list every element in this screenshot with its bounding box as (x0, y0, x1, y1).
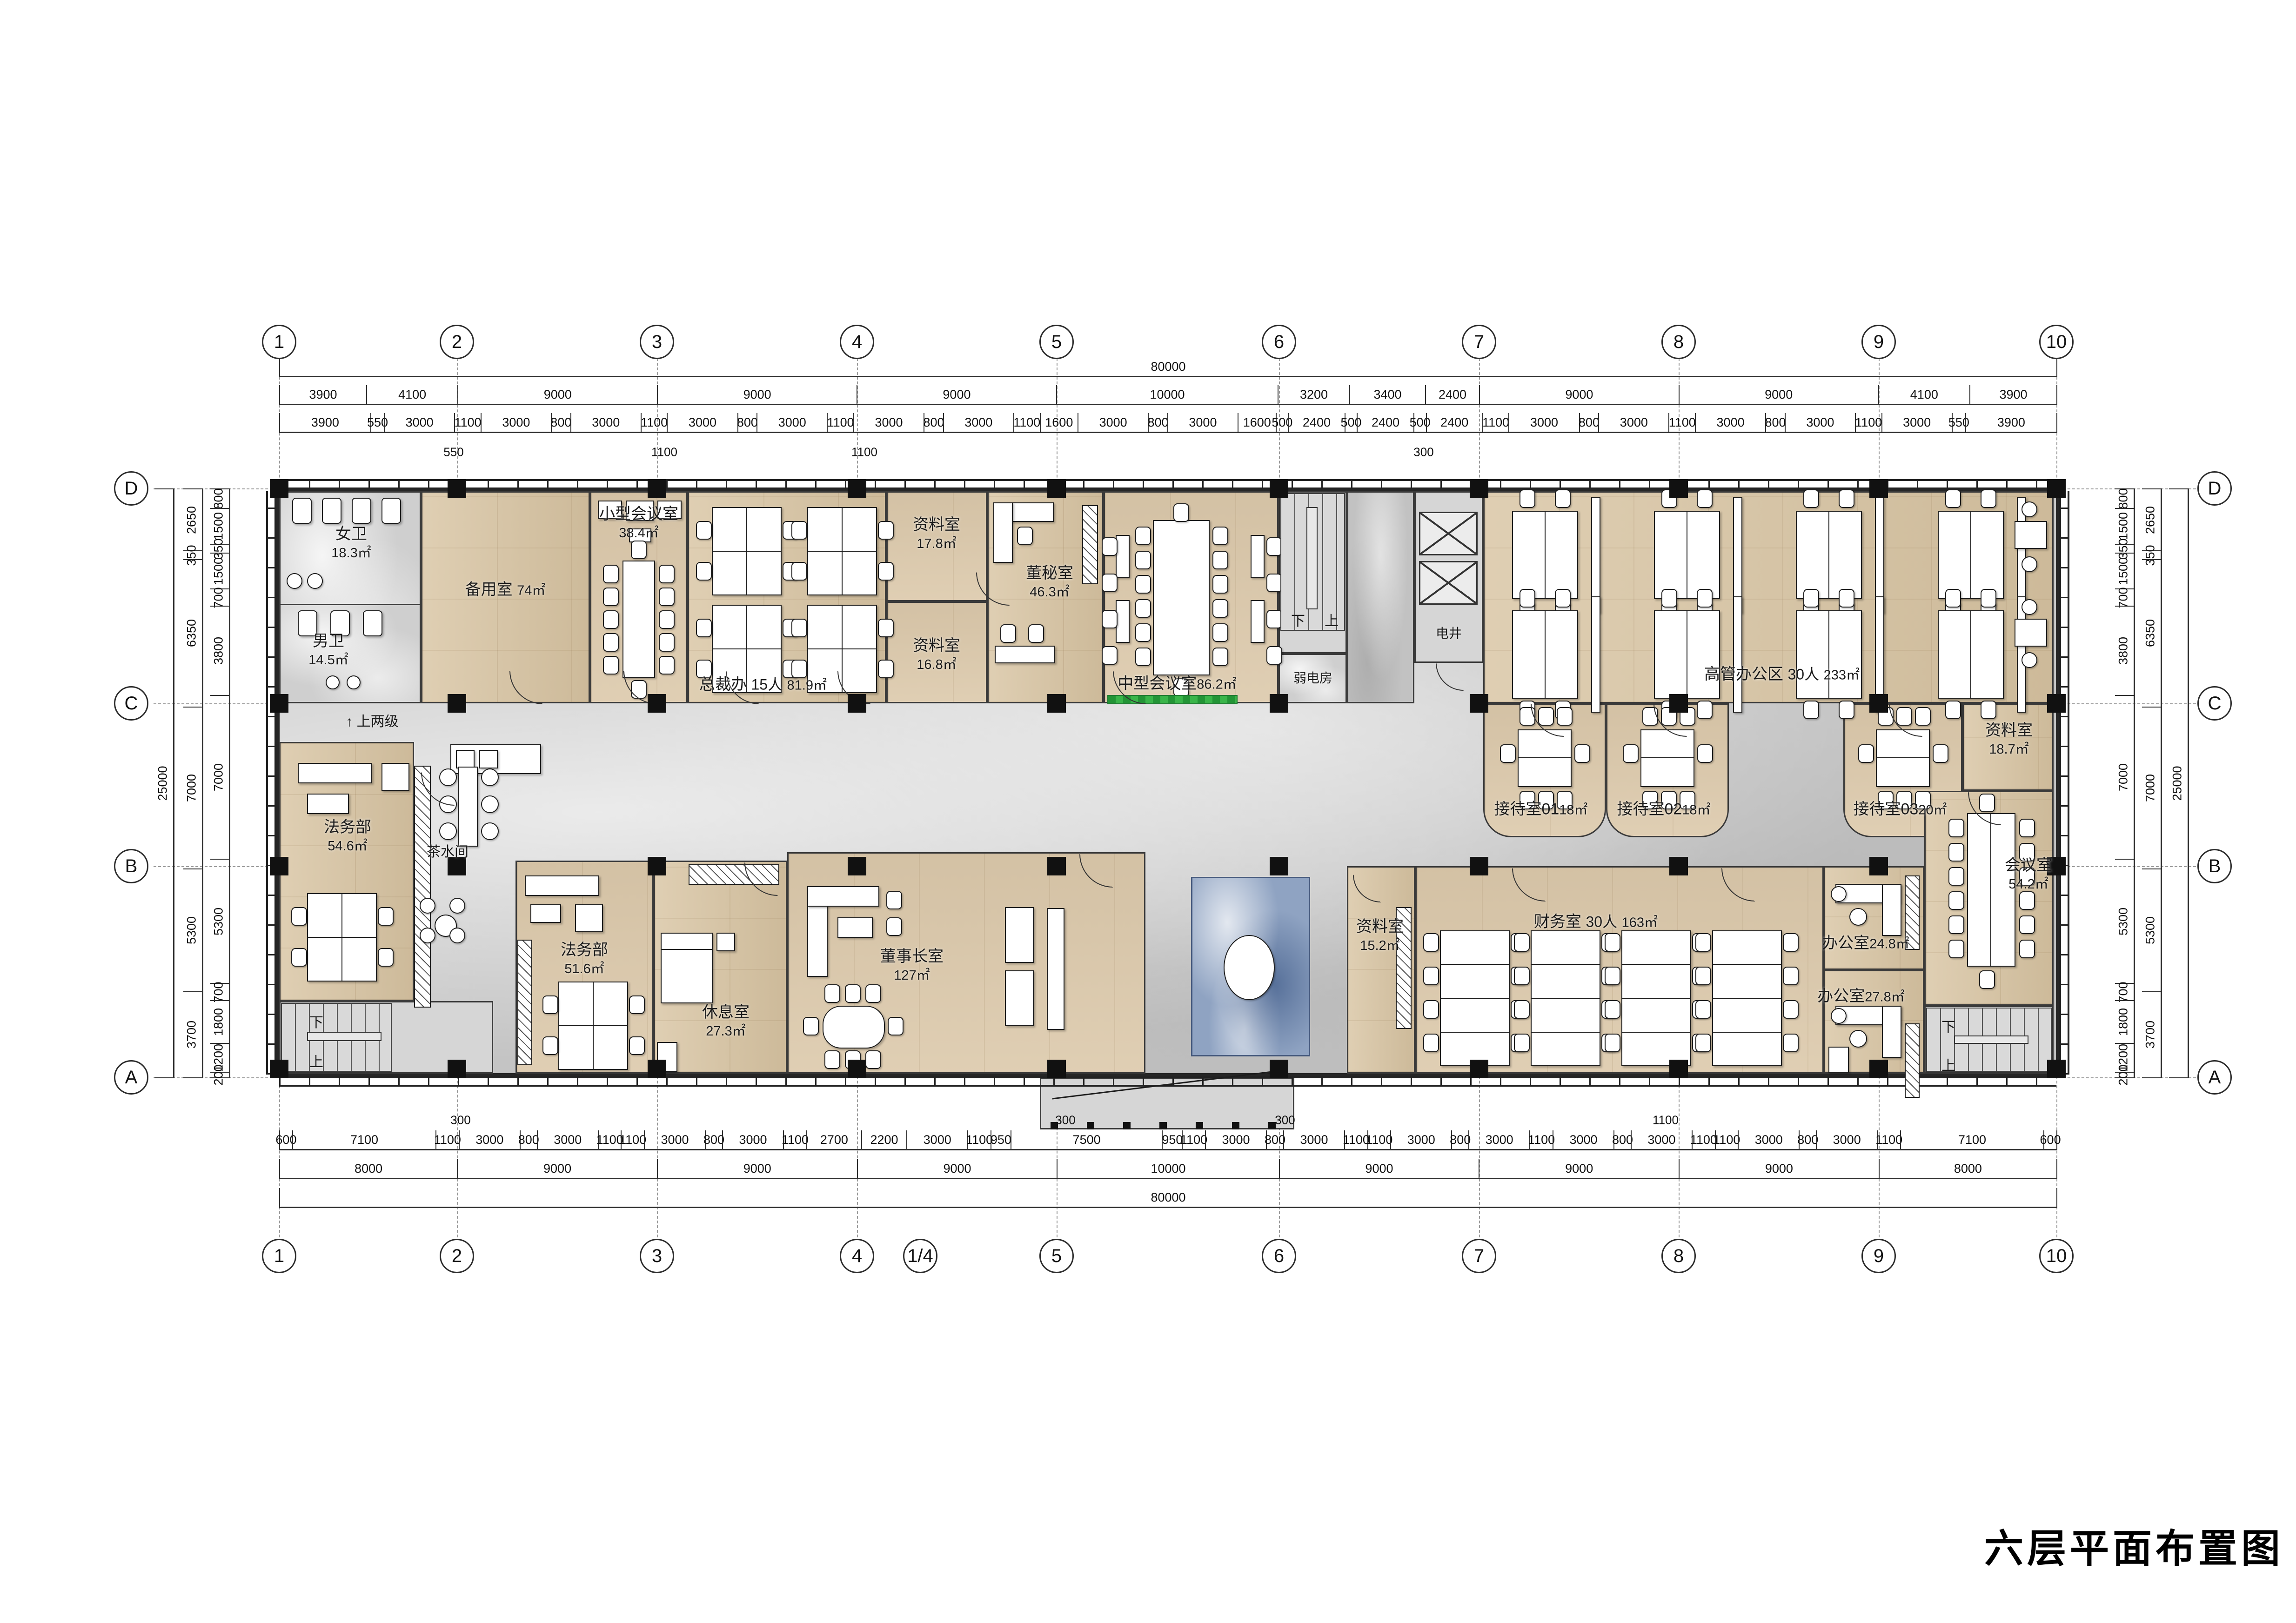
column (1869, 479, 1888, 498)
dim-segment: 800 (2115, 488, 2134, 508)
chair-furniture (1981, 489, 1996, 508)
dim-segment: 7100 (292, 1130, 435, 1149)
desk-furniture (1828, 1047, 1849, 1073)
grid-bubble-bottom: 4 (840, 1239, 874, 1273)
column (1669, 479, 1688, 498)
dim-segment: 800 (1799, 1130, 1816, 1149)
chair-furniture (1697, 589, 1713, 608)
label-weak-current: 弱电房 (1293, 671, 1332, 686)
column (1669, 694, 1688, 713)
column (448, 1060, 466, 1078)
desk-furniture (307, 794, 349, 814)
circ-furniture (481, 822, 499, 840)
dim-segment: 1500 (210, 553, 229, 588)
dim-segment: 1100 (1013, 413, 1040, 432)
dim-segment: 3900 (1969, 385, 2056, 404)
column (648, 857, 666, 875)
dim-segment: 9000 (857, 1159, 1057, 1178)
circ-furniture (481, 795, 499, 813)
grid-bubble-right: C (2197, 686, 2232, 721)
chair-furniture (659, 588, 675, 606)
label-board-secretary: 董秘室46.3㎡ (1026, 564, 1073, 601)
chair-furniture (1266, 574, 1282, 592)
line-furniture (746, 507, 747, 595)
chair-furniture (1102, 646, 1118, 665)
grid-bubble-top: 6 (1262, 325, 1296, 359)
desk-furniture (993, 502, 1013, 563)
dim-segment: 3000 (644, 1130, 705, 1149)
dim-segment: 600 (279, 1130, 292, 1149)
dim-segment: 1100 (435, 1130, 458, 1149)
column (270, 479, 288, 498)
desk-furniture (1640, 729, 1694, 787)
chair-furniture (1605, 1000, 1620, 1019)
grid-bubble-top: 10 (2039, 325, 2074, 359)
circ-furniture (481, 768, 499, 786)
grid-bubble-bottom: 3 (640, 1239, 674, 1273)
chair-furniture (1514, 1034, 1530, 1052)
elevator-lobby (1347, 491, 1414, 703)
chair-furniture (2019, 891, 2035, 910)
desk-furniture (1251, 535, 1265, 578)
column (848, 857, 866, 875)
chair-furniture (1623, 744, 1639, 763)
circ-furniture (2022, 652, 2037, 668)
desk-furniture (322, 498, 341, 524)
chair-furniture (1783, 967, 1799, 985)
chair-furniture (1858, 744, 1874, 763)
label-reception-03: 接待室0320㎡ (1853, 800, 1947, 818)
dim-callout: 1100 (851, 445, 877, 460)
dim-segment: 3900 (279, 385, 366, 404)
desk-furniture (1733, 596, 1742, 713)
chair-furniture (629, 995, 645, 1014)
dim-segment: 1100 (598, 1130, 621, 1149)
dim-segment: 800 (737, 413, 757, 432)
chair-furniture (291, 948, 307, 967)
grid-bubble-bottom: 2 (440, 1239, 474, 1273)
column (1669, 857, 1688, 875)
dim-segment: 9000 (1479, 385, 1679, 404)
label-reception-01: 接待室0118㎡ (1494, 800, 1587, 818)
chair-furniture (603, 610, 619, 629)
dim-segment: 500 (1345, 413, 1357, 432)
chair-furniture (1695, 1034, 1711, 1052)
dim-segment: 7100 (1900, 1130, 2043, 1149)
desk-furniture (2015, 521, 2047, 549)
circ-furniture (1831, 1008, 1847, 1024)
dim-segment: 3000 (1631, 1130, 1692, 1149)
dim-segment: 3000 (1738, 1130, 1799, 1149)
dim-segment: 800 (551, 413, 570, 432)
chair-furniture (1933, 744, 1948, 763)
label-archive-152: 资料室15.2㎡ (1356, 918, 1404, 954)
label-elec-shaft: 电井 (1436, 626, 1462, 641)
desk-furniture (823, 1006, 885, 1049)
dim-segment: 1100 (1344, 1130, 1367, 1149)
dim-segment: 3000 (1598, 413, 1668, 432)
dim-segment: 800 (924, 413, 943, 432)
dim-segment: 2700 (806, 1130, 861, 1149)
dim-segment: 1100 (454, 413, 481, 432)
dim-segment: 3000 (1390, 1130, 1451, 1149)
chair-furniture (1555, 489, 1571, 508)
circ-furniture (1849, 1030, 1867, 1048)
chair-furniture (1017, 527, 1033, 545)
line-furniture (1518, 757, 1572, 758)
note-stair-center-up: 上 (1325, 609, 1339, 630)
label-reception-02: 接待室0218㎡ (1617, 800, 1710, 818)
chair-furniture (603, 656, 619, 675)
chair-furniture (1212, 575, 1228, 594)
desk-furniture (623, 561, 655, 678)
column (2047, 479, 2066, 498)
chair-furniture (603, 565, 619, 583)
dim-segment: 5300 (2115, 859, 2134, 983)
line-furniture (1876, 757, 1930, 758)
dim-segment: 1100 (1715, 1130, 1738, 1149)
column (448, 479, 466, 498)
chair-furniture (1000, 624, 1016, 643)
chair-furniture (1212, 599, 1228, 618)
line-furniture (1440, 1032, 1510, 1033)
label-spare-room: 备用室 74㎡ (465, 581, 546, 599)
column (1869, 857, 1888, 875)
dim-segment: 200 (2115, 1072, 2134, 1077)
label-legal-516: 法务部51.6㎡ (561, 941, 608, 977)
rail-furniture (1954, 1035, 2028, 1044)
chair-furniture (791, 562, 807, 581)
dim-segment: 200 (210, 1072, 229, 1077)
dim-segment: 1100 (1668, 413, 1695, 432)
dim-segment: 800 (1451, 1130, 1468, 1149)
chair-furniture (659, 610, 675, 629)
dim-segment: 3000 (1553, 1130, 1613, 1149)
dim-segment: 1100 (967, 1130, 990, 1149)
dim-segment: 9000 (1479, 1159, 1679, 1178)
circ-furniture (420, 928, 435, 943)
desk-furniture (382, 763, 409, 791)
chair-furniture (1514, 967, 1530, 985)
chair-furniture (865, 1050, 881, 1069)
column (1470, 694, 1488, 713)
label-rest-room: 休息室27.3㎡ (702, 1003, 750, 1040)
dim-segment: 6350 (183, 559, 202, 706)
dim-segment: 350 (2142, 550, 2161, 559)
chair-furniture (888, 1017, 904, 1035)
circ-furniture (287, 573, 302, 589)
circ-furniture (449, 898, 465, 914)
desk-furniture (1882, 1006, 1901, 1058)
chair-furniture (1945, 589, 1961, 608)
line-furniture (341, 893, 342, 982)
dim-segment: 7000 (2142, 707, 2161, 868)
chair-furniture (1423, 967, 1439, 985)
column (848, 694, 866, 713)
dot-furniture (1123, 1122, 1131, 1129)
grid-bubble-left: B (114, 849, 148, 883)
chair-furniture (845, 984, 861, 1003)
dim-segment: 800 (1765, 413, 1785, 432)
chair-furniture (1945, 489, 1961, 508)
dim-segment: 700 (2115, 588, 2134, 606)
chair-furniture (629, 1036, 645, 1055)
chair-furniture (878, 660, 894, 678)
line-furniture (1640, 757, 1694, 758)
column (1047, 857, 1066, 875)
label-office-248: 办公室24.8㎡ (1822, 934, 1909, 952)
desk-furniture (292, 498, 312, 524)
chair-furniture (659, 656, 675, 675)
dim-segment: 1100 (827, 413, 853, 432)
floorplan-sheet: 1234567891012341/45678910DDCCBBAA 800003… (0, 0, 2296, 1623)
dim-segment: 350 (2115, 544, 2134, 553)
chair-furniture (803, 1017, 819, 1035)
dim-segment: 3000 (1816, 1130, 1877, 1149)
dim-segment: 1800 (2115, 1000, 2134, 1043)
dim-segment: 25000 (154, 488, 173, 1077)
dim-segment: 9000 (1679, 385, 1878, 404)
dim-segment: 3700 (2142, 991, 2161, 1077)
chair-furniture (1605, 1034, 1620, 1052)
label-small-meeting: 小型会议室38.4㎡ (599, 505, 678, 541)
chair-furniture (1948, 915, 1964, 934)
note-stair-se-down: 下 (1941, 1015, 1955, 1036)
desk-furniture (1875, 497, 1884, 613)
dim-segment: 5300 (210, 859, 229, 983)
dim-segment: 4100 (366, 385, 457, 404)
label-archive-168: 资料室16.8㎡ (913, 637, 960, 673)
dim-right-spans: 26503506350700053003700 (2142, 488, 2162, 1078)
grid-bubble-bottom: 9 (1861, 1239, 1896, 1273)
dim-callout: 1100 (1653, 1113, 1679, 1128)
dim-segment: 3900 (279, 413, 370, 432)
chair-furniture (878, 619, 894, 637)
note-stair-center-down: 下 (1291, 609, 1305, 630)
desk-furniture (1005, 907, 1034, 963)
dim-segment: 800 (1579, 413, 1599, 432)
column (1047, 1060, 1066, 1078)
chair-furniture (824, 1050, 840, 1069)
dim-segment: 7000 (183, 707, 202, 868)
chair-furniture (1697, 744, 1713, 763)
dim-segment: 3000 (384, 413, 454, 432)
chair-furniture (1555, 589, 1571, 608)
desk-furniture (1518, 729, 1572, 787)
dim-segment: 1100 (1182, 1130, 1205, 1149)
chair-furniture (659, 565, 675, 583)
dim-segment: 800 (705, 1130, 722, 1149)
hatch-furniture (414, 766, 431, 1008)
dim-segment: 80000 (279, 1188, 2056, 1207)
dim-segment: 3000 (1205, 1130, 1266, 1149)
dim-segment: 1100 (1855, 413, 1881, 432)
grid-bubble-right: A (2197, 1060, 2232, 1095)
north-window-wall (279, 479, 2056, 489)
dim-segment: 3000 (1785, 413, 1855, 432)
chair-furniture (696, 619, 712, 637)
grid-bubble-top: 9 (1861, 325, 1896, 359)
label-mens-wc: 男卫14.5㎡ (308, 632, 348, 668)
desk-furniture (479, 750, 498, 768)
grid-bubble-top: 7 (1462, 325, 1496, 359)
line-furniture (1712, 964, 1782, 965)
dim-callout: 1100 (651, 445, 677, 460)
circ-furniture (347, 675, 361, 689)
dim-bottom-detail: 6007100110030008003000110011003000800300… (279, 1130, 2057, 1150)
desk-furniture (458, 767, 478, 847)
chair-furniture (2019, 915, 2035, 934)
rail-furniture (1306, 507, 1318, 609)
column (1669, 1060, 1688, 1078)
chair-furniture (1839, 589, 1854, 608)
dim-segment: 1100 (1692, 1130, 1714, 1149)
elev-furniture (1419, 512, 1478, 555)
dim-segment: 3000 (1468, 1130, 1529, 1149)
chair-furniture (1266, 646, 1282, 665)
chair-furniture (1783, 1000, 1799, 1019)
dim-segment: 9000 (857, 385, 1056, 404)
chair-furniture (1102, 537, 1118, 556)
grid-bubble-left: D (114, 471, 148, 506)
dim-segment: 500 (1413, 413, 1426, 432)
dim-segment: 7000 (2115, 695, 2134, 859)
dim-segment: 2200 (861, 1130, 906, 1149)
dim-top-spans: 3900410090009000900010000320034002400900… (279, 385, 2057, 405)
line-furniture (1621, 964, 1691, 965)
line-furniture (1621, 1032, 1691, 1033)
chair-furniture (1697, 701, 1713, 719)
grid-bubble-bottom: 6 (1262, 1239, 1296, 1273)
dim-segment: 1100 (641, 413, 667, 432)
chair-furniture (1212, 551, 1228, 569)
dim-bottom-spans: 8000900090009000100009000900090008000 (279, 1159, 2057, 1179)
chair-furniture (696, 562, 712, 581)
dim-segment: 7000 (210, 695, 229, 859)
dim-segment: 3000 (853, 413, 924, 432)
chair-furniture (1948, 940, 1964, 958)
chair-furniture (1783, 1034, 1799, 1052)
dim-segment: 3000 (756, 413, 827, 432)
desk-furniture (2015, 619, 2047, 647)
dim-callout: 550 (443, 445, 463, 460)
dim-segment: 1100 (1482, 413, 1509, 432)
dim-segment: 3000 (1283, 1130, 1344, 1149)
note-up-two-steps: ↑ 上两级 (346, 710, 398, 730)
label-archive-178: 资料室17.8㎡ (913, 516, 960, 552)
desk-furniture (530, 904, 561, 923)
desk-furniture (661, 933, 713, 1003)
dim-segment: 2400 (1425, 385, 1479, 404)
chair-furniture (1661, 589, 1677, 608)
chair-furniture (1697, 489, 1713, 508)
dim-segment: 9000 (457, 1159, 657, 1178)
desk-furniture (1005, 970, 1034, 1026)
dim-segment: 1100 (783, 1130, 806, 1149)
label-chairman: 董事长室127㎡ (880, 948, 944, 984)
circ-furniture (420, 898, 435, 914)
chair-furniture (1514, 1000, 1530, 1019)
chair-furniture (1945, 701, 1961, 719)
column (1869, 1060, 1888, 1078)
line-furniture (1621, 998, 1691, 999)
dim-left-detail: 8001500350150070038007000530070018001200… (210, 488, 230, 1078)
dim-segment: 9000 (657, 385, 857, 404)
line-furniture (1687, 610, 1687, 699)
grid-bubble-top: 8 (1661, 325, 1696, 359)
chair-furniture (542, 995, 558, 1014)
dim-segment: 3000 (1695, 413, 1765, 432)
dot-furniture (1087, 1122, 1094, 1129)
column (1047, 694, 1066, 713)
chair-furniture (1173, 503, 1189, 522)
dim-segment: 700 (2115, 983, 2134, 1000)
chair-furniture (1605, 933, 1620, 952)
column (648, 1060, 666, 1078)
chair-furniture (865, 984, 881, 1003)
column (1470, 479, 1488, 498)
dot-furniture (1196, 1122, 1203, 1129)
desk-furniture (352, 498, 371, 524)
line-furniture (1440, 998, 1510, 999)
dim-segment: 700 (210, 983, 229, 1000)
dim-segment: 2400 (1357, 413, 1413, 432)
dim-segment: 10000 (1056, 385, 1278, 404)
desk-furniture (1116, 600, 1130, 643)
dim-segment: 1500 (2115, 553, 2134, 588)
dim-bottom-total: 80000 (279, 1188, 2057, 1208)
label-meeting-542: 会议室54.2㎡ (2005, 856, 2052, 893)
chair-furniture (1574, 744, 1590, 763)
note-stair-sw-down: 下 (309, 1011, 323, 1031)
sheet-title: 六层平面布置图 (1984, 1517, 2284, 1574)
desk-furniture (1591, 596, 1600, 713)
chair-furniture (886, 917, 902, 936)
chair-furniture (824, 984, 840, 1003)
chair-furniture (1695, 933, 1711, 952)
column (1869, 694, 1888, 713)
circ-furniture (307, 573, 323, 589)
note-stair-sw-up: 上 (309, 1050, 323, 1071)
dim-segment: 9000 (1279, 1159, 1479, 1178)
desk-furniture (525, 875, 599, 896)
circ-furniture (1224, 935, 1275, 1000)
dim-segment: 550 (1952, 413, 1965, 432)
chair-furniture (1948, 867, 1964, 886)
circ-furniture (449, 928, 465, 943)
dim-segment: 7500 (1011, 1130, 1162, 1149)
desk-furniture (807, 886, 879, 907)
dim-segment: 800 (1148, 413, 1167, 432)
dim-segment: 3000 (570, 413, 641, 432)
dim-right-detail: 8001500350150070038007000530070018001200… (2115, 488, 2135, 1078)
chair-furniture (1783, 933, 1799, 952)
circ-furniture (2022, 501, 2037, 517)
dim-segment: 3200 (1278, 385, 1349, 404)
dim-segment: 3000 (481, 413, 551, 432)
chair-furniture (1135, 648, 1151, 666)
grid-bubble-bottom: 7 (1462, 1239, 1496, 1273)
column (1470, 1060, 1488, 1078)
desk-furniture (1591, 497, 1600, 613)
label-tea-room: 茶水间 (427, 844, 469, 861)
grid-bubble-left: A (114, 1060, 148, 1095)
dim-segment: 2400 (1426, 413, 1482, 432)
dim-segment: 10000 (1057, 1159, 1279, 1178)
chair-furniture (1423, 1034, 1439, 1052)
chair-furniture (1803, 701, 1819, 719)
dim-segment: 800 (1613, 1130, 1631, 1149)
